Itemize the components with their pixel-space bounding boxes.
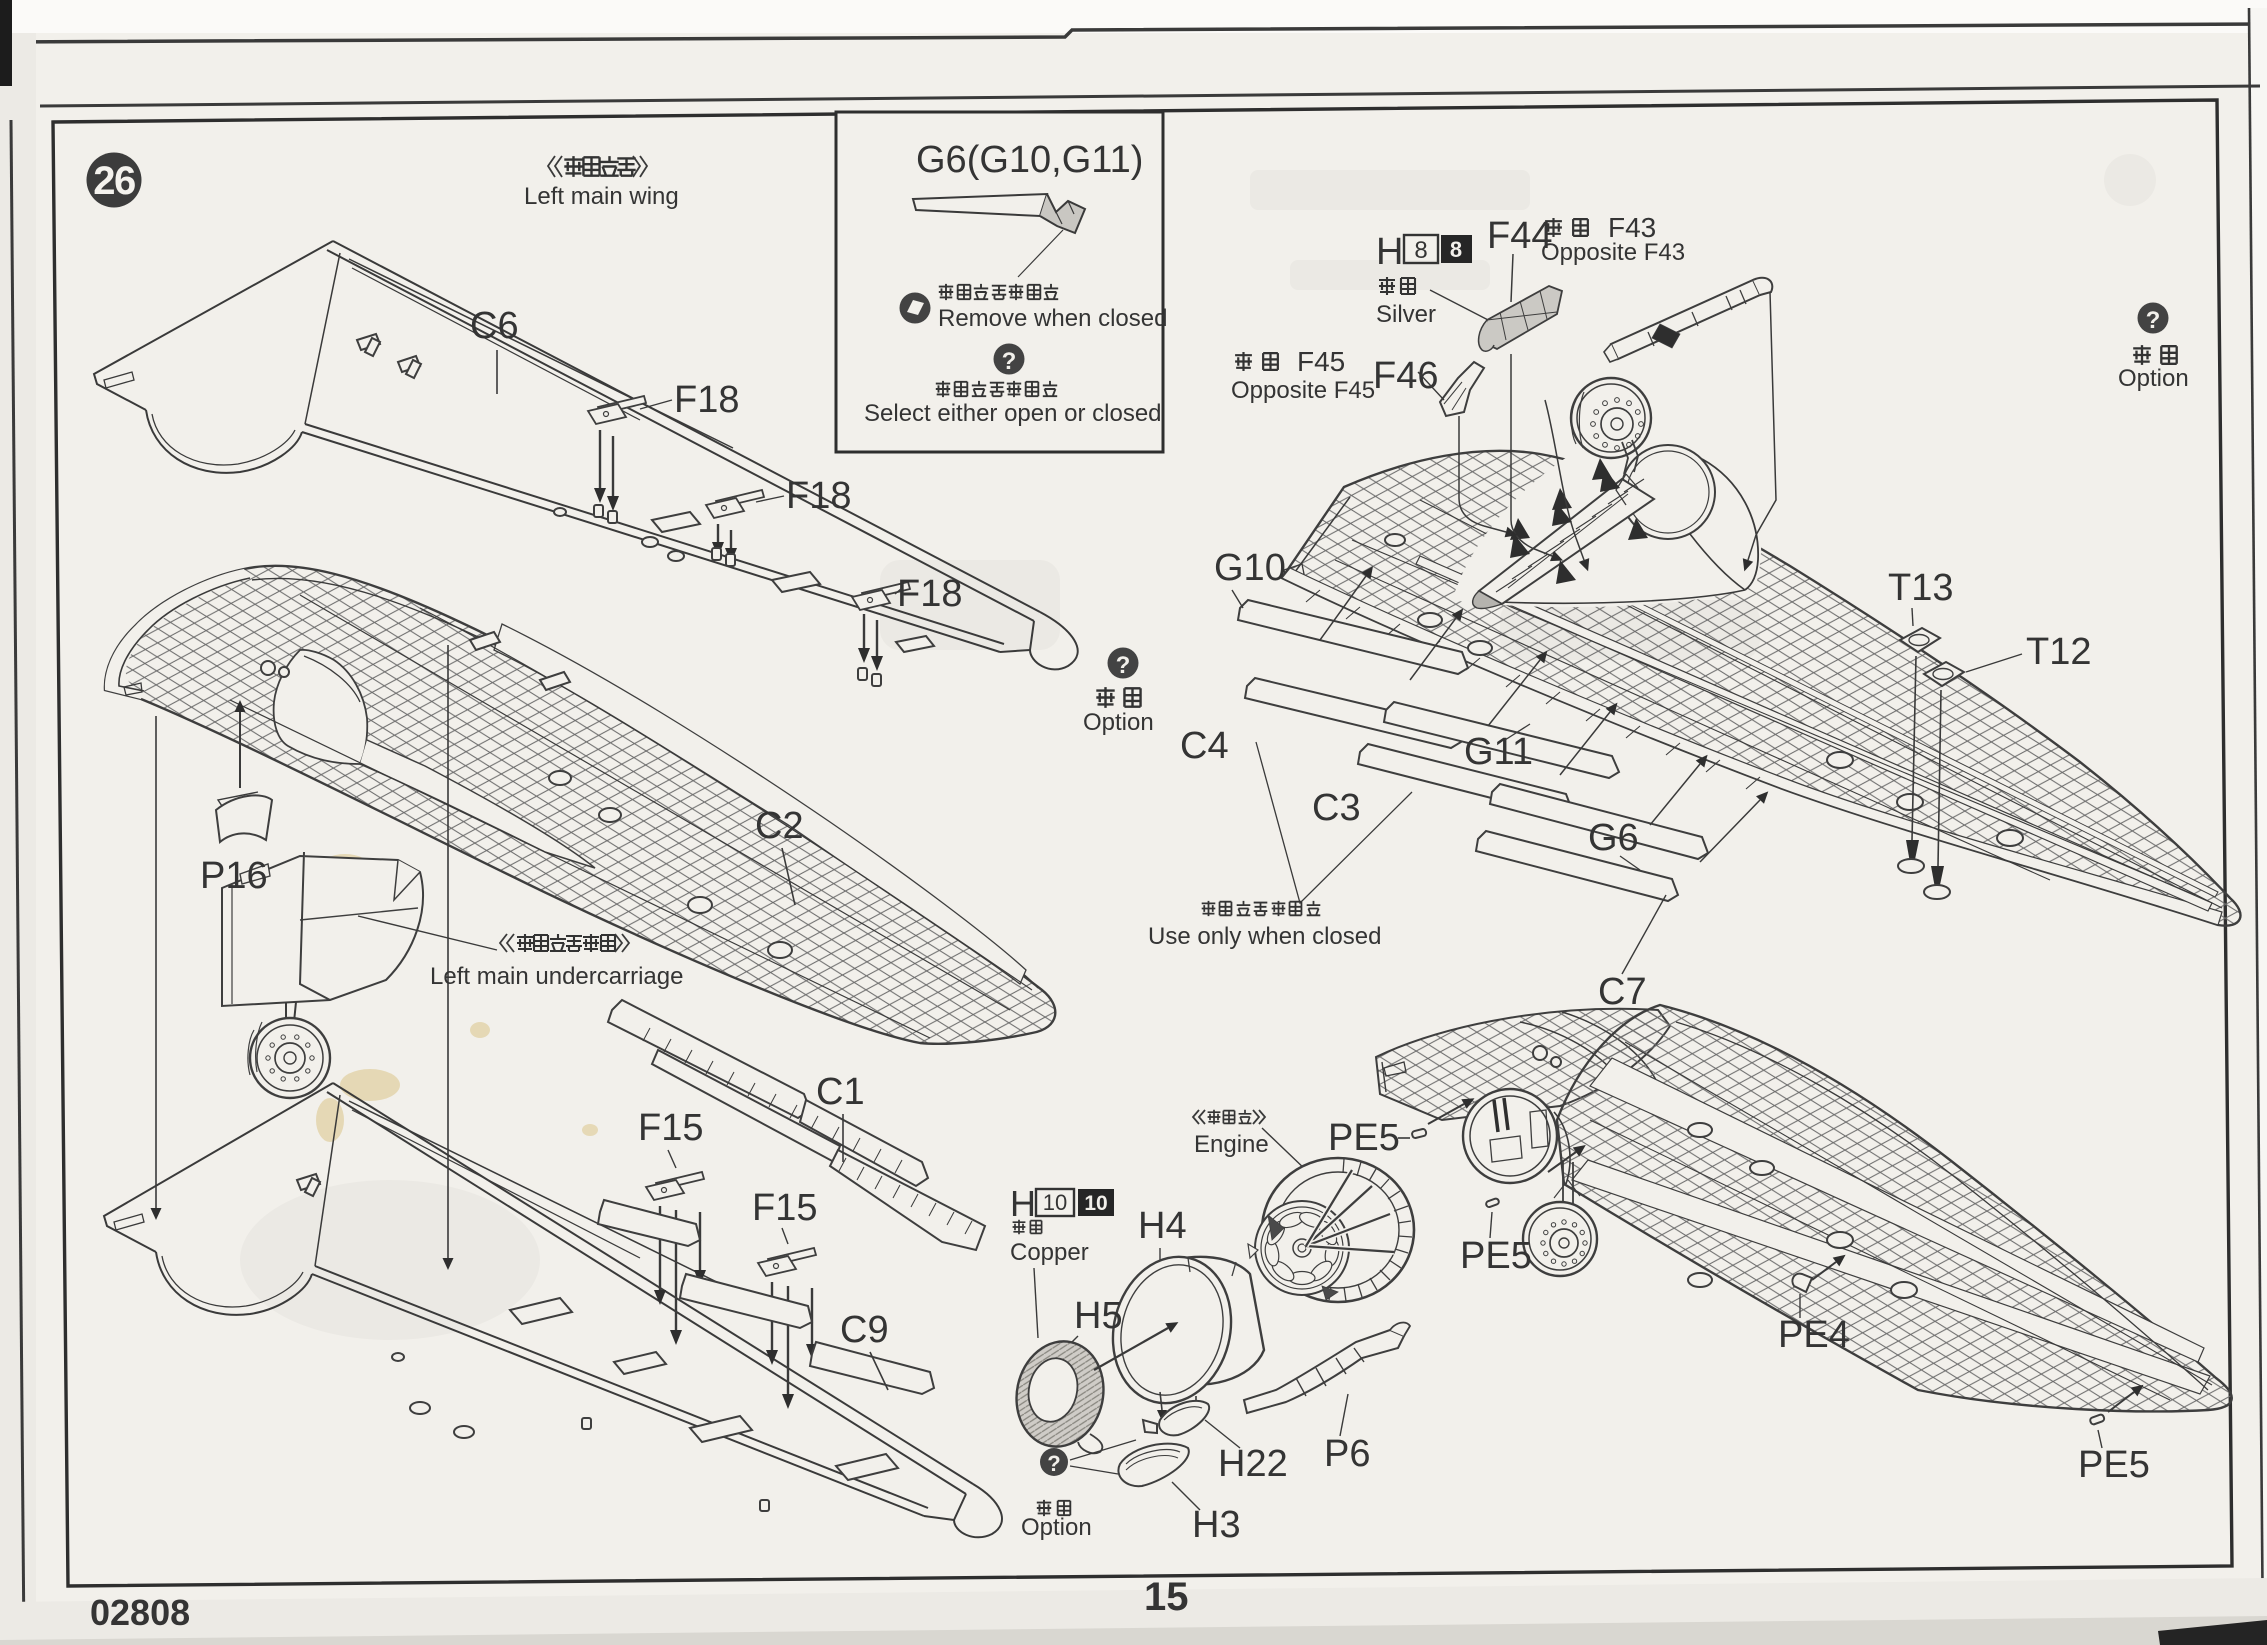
svg-text:H22: H22: [1218, 1443, 1288, 1485]
svg-text:H: H: [1010, 1183, 1036, 1224]
svg-text:C1: C1: [816, 1071, 865, 1113]
svg-text:F18: F18: [897, 573, 962, 615]
svg-text:C6: C6: [470, 305, 519, 347]
svg-text:?: ?: [1002, 348, 1017, 375]
svg-text:Remove when closed: Remove when closed: [938, 305, 1167, 332]
svg-text:G6(G10,G11): G6(G10,G11): [916, 139, 1143, 181]
svg-text:C7: C7: [1598, 971, 1647, 1013]
svg-text:PE4: PE4: [1778, 1314, 1850, 1356]
svg-text:?: ?: [1116, 652, 1131, 679]
svg-text:F15: F15: [752, 1187, 817, 1229]
svg-text:02808: 02808: [90, 1592, 190, 1633]
svg-text:Select either open or closed: Select either open or closed: [864, 400, 1162, 427]
svg-text:H: H: [1376, 231, 1403, 273]
svg-text:H5: H5: [1074, 1295, 1123, 1337]
svg-text:H3: H3: [1192, 1504, 1241, 1546]
svg-text:26: 26: [93, 159, 135, 203]
svg-text:F45: F45: [1297, 346, 1345, 377]
svg-text:PE5: PE5: [2078, 1444, 2150, 1486]
svg-text:PE5: PE5: [1460, 1235, 1532, 1277]
svg-text:H4: H4: [1138, 1205, 1187, 1247]
svg-text:?: ?: [2146, 307, 2161, 334]
svg-text:Use only when closed: Use only when closed: [1148, 923, 1381, 950]
svg-text:G10: G10: [1214, 547, 1286, 589]
svg-text:?: ?: [1047, 1451, 1060, 1476]
svg-text:Left main undercarriage: Left main undercarriage: [430, 963, 683, 990]
svg-text:8: 8: [1450, 237, 1462, 262]
svg-text:P16: P16: [200, 855, 268, 897]
svg-text:T13: T13: [1888, 567, 1953, 609]
svg-text:10: 10: [1084, 1192, 1107, 1215]
svg-text:C9: C9: [840, 1309, 889, 1351]
svg-text:F18: F18: [786, 475, 851, 517]
svg-text:C2: C2: [755, 805, 804, 847]
svg-text:Copper: Copper: [1010, 1239, 1089, 1266]
svg-text:G11: G11: [1464, 731, 1533, 773]
svg-text:T12: T12: [2026, 631, 2091, 673]
svg-text:Opposite F43: Opposite F43: [1541, 239, 1685, 266]
svg-text:Option: Option: [1021, 1514, 1092, 1541]
svg-text:Silver: Silver: [1376, 301, 1436, 328]
svg-text:G6: G6: [1588, 817, 1639, 859]
svg-text:C3: C3: [1312, 787, 1361, 829]
svg-text:15: 15: [1144, 1575, 1189, 1619]
svg-text:Left main wing: Left main wing: [524, 183, 679, 210]
svg-text:C4: C4: [1180, 725, 1229, 767]
svg-text:Option: Option: [2118, 365, 2189, 392]
svg-text:Opposite F45: Opposite F45: [1231, 377, 1375, 404]
svg-text:10: 10: [1043, 1190, 1067, 1215]
svg-text:F15: F15: [638, 1107, 703, 1149]
svg-text:Option: Option: [1083, 709, 1154, 736]
svg-text:PE5: PE5: [1328, 1117, 1400, 1159]
svg-text:8: 8: [1414, 237, 1427, 264]
svg-text:F18: F18: [674, 379, 739, 421]
svg-text:P6: P6: [1324, 1433, 1370, 1475]
svg-text:F46: F46: [1373, 355, 1438, 397]
svg-text:Engine: Engine: [1194, 1131, 1269, 1158]
